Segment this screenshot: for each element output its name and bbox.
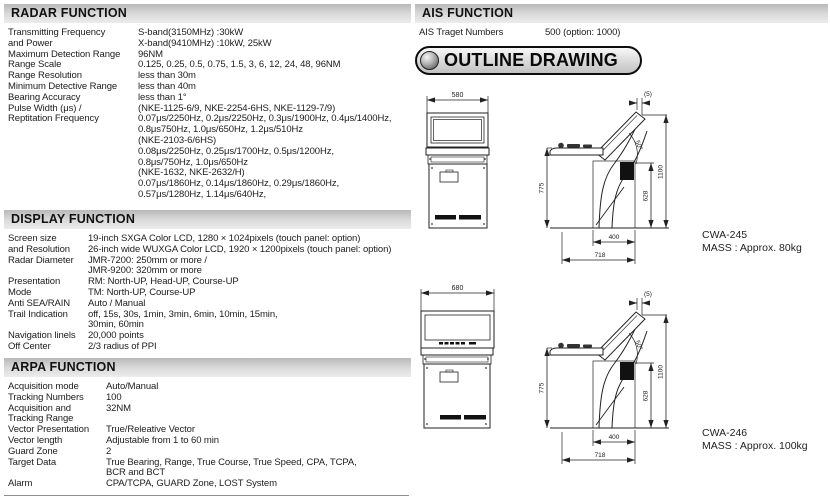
spec-value: (NKE-2103-6/6HS) (138, 135, 411, 146)
spec-row: Minimum Detective Range less than 40m (4, 81, 411, 92)
spec-row: Pulse Width (μs) / (NKE-1125-6/9, NKE-22… (4, 103, 411, 114)
spec-row: 0.57μs/1280Hz, 1.14μs/640Hz, (4, 189, 411, 200)
spec-row: Mode TM: North-UP, Course-UP (4, 287, 411, 298)
spec-label: Anti SEA/RAIN (4, 298, 88, 309)
spec-value: 2/3 radius of PPI (88, 341, 411, 352)
arpa-spec-table: Acquisition mode Auto/Manual Tracking Nu… (4, 381, 411, 489)
spec-value: 100 (106, 392, 411, 403)
spec-value: less than 30m (138, 70, 411, 81)
spec-value: 0.125, 0.25, 0.5, 0.75, 1.5, 3, 6, 12, 2… (138, 59, 411, 70)
spec-row: Range Scale 0.125, 0.25, 0.5, 0.75, 1.5,… (4, 59, 411, 70)
outline-drawing-title: OUTLINE DRAWING (444, 50, 618, 71)
spec-value: True Bearing, Range, True Course, True S… (106, 457, 411, 468)
spec-label: Acquisition mode (4, 381, 106, 392)
spec-label: Guard Zone (4, 446, 106, 457)
front-view-cwa-246: 680 (421, 285, 494, 428)
spec-label: Tracking Numbers (4, 392, 106, 403)
spec-value: less than 40m (138, 81, 411, 92)
section-radar: RADAR FUNCTION Transmitting Frequency S-… (4, 4, 411, 200)
spec-value: 30min, 60min (88, 319, 411, 330)
spec-row: Acquisition and 32NM (4, 403, 411, 414)
spec-row: Target Data True Bearing, Range, True Co… (4, 457, 411, 468)
spec-value: JMR-9200: 320mm or more (88, 265, 411, 276)
spec-value: Adjustable from 1 to 60 min (106, 435, 411, 446)
ais-spec-table: AIS Traget Numbers 500 (option: 1000) (415, 27, 828, 38)
spec-value: 0.8μs750Hz, 1.0μs/650Hz, 1.2μs/510Hz (138, 124, 411, 135)
spec-label (4, 124, 138, 135)
dim-total-height: 1100 (658, 165, 665, 179)
dim-top-offset: (5) (644, 91, 652, 98)
spec-value: JMR-7200: 250mm or more / (88, 255, 411, 266)
spec-value: 32NM (106, 403, 411, 414)
spec-row: Alarm CPA/TCPA, GUARD Zone, LOST System (4, 478, 411, 489)
spec-label: Alarm (4, 478, 106, 489)
radar-section-header: RADAR FUNCTION (4, 4, 411, 23)
spec-label: and Resolution (4, 244, 88, 255)
model-number: CWA-245 (702, 229, 802, 242)
spec-value: RM: North-UP, Head-UP, Course-UP (88, 276, 411, 287)
dim-base-depth: 718 (595, 252, 606, 259)
model-mass: MASS : Approx. 80kg (702, 242, 802, 255)
side-view-console: 50° (5) 1100 628 775 400 (539, 91, 670, 264)
spec-label: Minimum Detective Range (4, 81, 138, 92)
spec-label (4, 467, 106, 478)
spec-row: Off Center 2/3 radius of PPI (4, 341, 411, 352)
spec-row: and Resolution 26-inch wide WUXGA Color … (4, 244, 411, 255)
spec-value: off, 15s, 30s, 1min, 3min, 6min, 10min, … (88, 309, 411, 320)
spec-row: 0.8μs750Hz, 1.0μs/650Hz, 1.2μs/510Hz (4, 124, 411, 135)
spec-label: Tracking Range (4, 413, 106, 424)
spec-value: 0.57μs/1280Hz, 1.14μs/640Hz, (138, 189, 411, 200)
spec-row: and Power X-band(9410MHz) :10kW, 25kW (4, 38, 411, 49)
dim-front-width: 580 (452, 92, 464, 99)
spec-value: CPA/TCPA, GUARD Zone, LOST System (106, 478, 411, 489)
arpa-section-title: ARPA FUNCTION (11, 360, 116, 374)
spec-value: less than 1° (138, 92, 411, 103)
spec-row: Reptitation Frequency 0.07μs/2250Hz, 0.2… (4, 113, 411, 124)
bottom-divider (4, 495, 409, 496)
spec-value: 20,000 points (88, 330, 411, 341)
spec-row: (NKE-1632, NKE-2632/H) (4, 167, 411, 178)
model-mass: MASS : Approx. 100kg (702, 440, 808, 453)
spec-row: Screen size 19-inch SXGA Color LCD, 1280… (4, 233, 411, 244)
arpa-section-header: ARPA FUNCTION (4, 358, 411, 377)
model-number: CWA-246 (702, 427, 808, 440)
spec-label (4, 265, 88, 276)
spec-label: Vector length (4, 435, 106, 446)
spec-label: and Power (4, 38, 138, 49)
spec-label: Target Data (4, 457, 106, 468)
spec-label (4, 319, 88, 330)
spec-value: True/Releative Vector (106, 424, 411, 435)
spec-row: 0.07μs/1860Hz, 0.14μs/1860Hz, 0.29μs/186… (4, 178, 411, 189)
spec-label: Reptitation Frequency (4, 113, 138, 124)
spec-row: Bearing Accuracy less than 1° (4, 92, 411, 103)
spec-row: Transmitting Frequency S-band(3150MHz) :… (4, 27, 411, 38)
spec-row: 0.8μs/750Hz, 1.0μs/650Hz (4, 157, 411, 168)
outline-drawing-cwa-246: 680 (415, 276, 715, 471)
spec-row: Maximum Detection Range 96NM (4, 49, 411, 60)
spec-label (4, 157, 138, 168)
spec-row: Guard Zone 2 (4, 446, 411, 457)
spec-value: (NKE-1125-6/9, NKE-2254-6HS, NKE-1129-7/… (138, 103, 411, 114)
spec-label: Trail Indication (4, 309, 88, 320)
spec-label: Pulse Width (μs) / (4, 103, 138, 114)
spec-row: Range Resolution less than 30m (4, 70, 411, 81)
spec-row: Tracking Range (4, 413, 411, 424)
spec-label: Acquisition and (4, 403, 106, 414)
spec-value: 19-inch SXGA Color LCD, 1280 × 1024pixel… (88, 233, 411, 244)
spec-row: Anti SEA/RAIN Auto / Manual (4, 298, 411, 309)
spec-row: 30min, 60min (4, 319, 411, 330)
ais-section-header: AIS FUNCTION (415, 4, 828, 23)
spec-row: Tracking Numbers 100 (4, 392, 411, 403)
spec-columns-right: AIS FUNCTION AIS Traget Numbers 500 (opt… (415, 4, 828, 496)
dim-front-width: 680 (452, 285, 464, 292)
spec-label: Range Resolution (4, 70, 138, 81)
spec-value: Auto/Manual (106, 381, 411, 392)
spec-value: (NKE-1632, NKE-2632/H) (138, 167, 411, 178)
side-view-console (539, 291, 670, 464)
spec-row: Navigation linels 20,000 points (4, 330, 411, 341)
spec-label: Bearing Accuracy (4, 92, 138, 103)
radar-section-title: RADAR FUNCTION (11, 6, 127, 20)
spec-value: 500 (option: 1000) (545, 27, 828, 38)
spec-value: Auto / Manual (88, 298, 411, 309)
section-ais: AIS FUNCTION AIS Traget Numbers 500 (opt… (415, 4, 828, 38)
section-arpa: ARPA FUNCTION Acquisition mode Auto/Manu… (4, 358, 411, 489)
spec-value: 0.08μs/2250Hz, 0.25μs/1700Hz, 0.5μs/1200… (138, 146, 411, 157)
outline-drawing-cwa-245: 580 (415, 86, 715, 278)
spec-value: 0.07μs/1860Hz, 0.14μs/1860Hz, 0.29μs/186… (138, 178, 411, 189)
spec-label: Presentation (4, 276, 88, 287)
spec-value (106, 413, 411, 424)
spec-label: Mode (4, 287, 88, 298)
dim-tilt-angle: 50° (633, 139, 644, 151)
spec-value: 96NM (138, 49, 411, 60)
spec-row: JMR-9200: 320mm or more (4, 265, 411, 276)
spec-row: Presentation RM: North-UP, Head-UP, Cour… (4, 276, 411, 287)
spec-value: BCR and BCT (106, 467, 411, 478)
spec-row: Radar Diameter JMR-7200: 250mm or more / (4, 255, 411, 266)
outline-drawing-heading: OUTLINE DRAWING (415, 46, 642, 75)
display-section-title: DISPLAY FUNCTION (11, 212, 135, 226)
spec-value: 0.07μs/2250Hz, 0.2μs/2250Hz, 0.3μs/1900H… (138, 113, 411, 124)
spec-row: (NKE-2103-6/6HS) (4, 135, 411, 146)
dim-bracket-height: 628 (643, 190, 650, 201)
spec-label: Navigation linels (4, 330, 88, 341)
spec-label (4, 167, 138, 178)
dim-shelf-height: 775 (539, 182, 546, 193)
spec-value: X-band(9410MHz) :10kW, 25kW (138, 38, 411, 49)
spec-label: Off Center (4, 341, 88, 352)
spec-row: Vector length Adjustable from 1 to 60 mi… (4, 435, 411, 446)
spec-row: AIS Traget Numbers 500 (option: 1000) (415, 27, 828, 38)
radar-spec-table: Transmitting Frequency S-band(3150MHz) :… (4, 27, 411, 200)
spec-label: Radar Diameter (4, 255, 88, 266)
spec-value: S-band(3150MHz) :30kW (138, 27, 411, 38)
spec-row: Vector Presentation True/Releative Vecto… (4, 424, 411, 435)
dim-base-width: 400 (609, 234, 620, 241)
section-display: DISPLAY FUNCTION Screen size 19-inch SXG… (4, 210, 411, 352)
spec-row: 0.08μs/2250Hz, 0.25μs/1700Hz, 0.5μs/1200… (4, 146, 411, 157)
spec-row: BCR and BCT (4, 467, 411, 478)
spec-label (4, 178, 138, 189)
display-section-header: DISPLAY FUNCTION (4, 210, 411, 229)
spec-row: Trail Indication off, 15s, 30s, 1min, 3m… (4, 309, 411, 320)
spec-label (4, 135, 138, 146)
front-view-cwa-245: 580 (426, 92, 489, 228)
spec-label: Range Scale (4, 59, 138, 70)
ais-section-title: AIS FUNCTION (422, 6, 513, 20)
spec-label: Maximum Detection Range (4, 49, 138, 60)
sphere-bullet-icon (420, 51, 439, 70)
spec-row: Acquisition mode Auto/Manual (4, 381, 411, 392)
model-label-cwa-245: CWA-245 MASS : Approx. 80kg (702, 229, 802, 254)
display-spec-table: Screen size 19-inch SXGA Color LCD, 1280… (4, 233, 411, 352)
spec-label: Vector Presentation (4, 424, 106, 435)
spec-label: Screen size (4, 233, 88, 244)
model-label-cwa-246: CWA-246 MASS : Approx. 100kg (702, 427, 808, 452)
spec-value: 26-inch wide WUXGA Color LCD, 1920 × 120… (88, 244, 411, 255)
spec-value: 0.8μs/750Hz, 1.0μs/650Hz (138, 157, 411, 168)
spec-value: 2 (106, 446, 411, 457)
spec-label: Transmitting Frequency (4, 27, 138, 38)
spec-columns-left: RADAR FUNCTION Transmitting Frequency S-… (4, 4, 411, 496)
spec-label: AIS Traget Numbers (415, 27, 545, 38)
spec-label (4, 189, 138, 200)
spec-value: TM: North-UP, Course-UP (88, 287, 411, 298)
spec-label (4, 146, 138, 157)
